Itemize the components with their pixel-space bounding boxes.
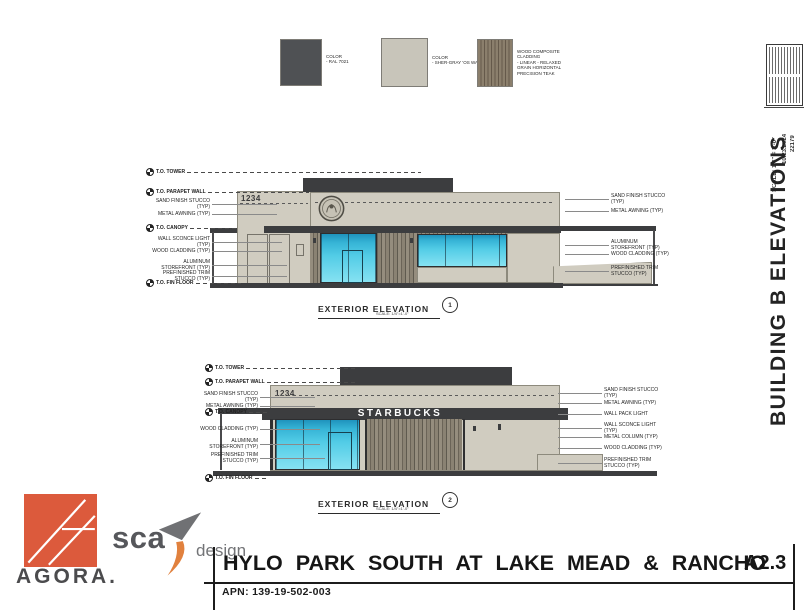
- elevation-1-title: EXTERIOR ELEVATION: [318, 299, 440, 319]
- agora-logo: [24, 494, 97, 567]
- elevation-2-scale: SCALE: 1/4"=1'-0": [376, 506, 409, 511]
- annotation: METAL AWNING (TYP): [565, 209, 670, 215]
- tower-roof-cap: [303, 178, 453, 192]
- rooftop-unit: [340, 367, 512, 385]
- annotation: WOOD CLADDING (TYP): [558, 446, 663, 452]
- benchmark-icon: [205, 364, 213, 372]
- fine-print-lines: [769, 77, 800, 104]
- material-label-light-paint: COLOR - SHER-GRAY 'OS WAD': [432, 55, 482, 66]
- fine-print-lines: [769, 47, 800, 74]
- annotation: PREFINISHED TRIM STUCCO (TYP): [152, 271, 287, 282]
- annotation: PREFINISHED TRIM STUCCO (TYP): [558, 458, 663, 469]
- annotation: SAND FINISH STUCCO (TYP): [200, 392, 315, 403]
- material-swatch-light-paint: [381, 38, 428, 87]
- annotation: SAND FINISH STUCCO (TYP): [558, 388, 663, 399]
- annotation: WALL SCONCE LIGHT (TYP): [558, 423, 663, 434]
- level-marker-row: T.O. PARAPET WALL: [205, 378, 355, 386]
- annotation: METAL AWNING (TYP): [200, 404, 315, 410]
- annotation: ALUMINUM STOREFRONT (TYP): [200, 439, 320, 450]
- annotation: WOOD CLADDING (TYP): [200, 427, 320, 433]
- sidebar-divider-line: [764, 107, 804, 108]
- stucco-right-section: [507, 233, 560, 284]
- level-marker-row: T.O. TOWER: [205, 364, 355, 372]
- metal-column: [365, 419, 367, 470]
- annotation: SAND FINISH STUCCO (TYP): [565, 194, 670, 205]
- level-marker-row: T.O. FIN FLOOR: [205, 474, 268, 482]
- entry-door: [328, 432, 352, 470]
- material-label-wood: WOOD COMPOSITE CLADDING - LINEAR - RELAX…: [517, 49, 561, 76]
- annotation: SAND FINISH STUCCO (TYP): [152, 199, 277, 210]
- starbucks-sign: STARBUCKS: [325, 409, 475, 420]
- benchmark-icon: [146, 188, 154, 196]
- annotation: METAL AWNING (TYP): [152, 212, 277, 218]
- benchmark-icon: [205, 378, 213, 386]
- wall-sconce: [410, 238, 413, 243]
- parapet-dashed-line: [275, 395, 555, 396]
- level-marker-row: T.O. PARAPET WALL: [146, 188, 309, 196]
- annotation: WOOD CLADDING (TYP): [152, 249, 282, 255]
- title-block-left-rule: [213, 547, 215, 610]
- fine-print-box: [766, 44, 803, 106]
- annotation: PREFINISHED TRIM STUCCO (TYP): [200, 453, 325, 464]
- sheet-side-title: BUILDING B ELEVATIONS: [760, 130, 798, 432]
- material-swatch-dark-paint: [280, 39, 322, 86]
- annotation: WOOD CLADDING (TYP): [565, 252, 670, 258]
- base-band: [213, 471, 657, 477]
- annotation: ALUMINUM STOREFRONT (TYP): [565, 240, 670, 251]
- wall-sconce: [313, 238, 316, 243]
- main-upper-wall: [310, 192, 560, 228]
- entry-door: [342, 250, 363, 283]
- detail-number-bubble: 2: [442, 492, 458, 508]
- sheet-number: A2.3: [744, 552, 786, 575]
- canopy-right: [560, 226, 656, 231]
- project-title: HYLO PARK SOUTH AT LAKE MEAD & RANCHO: [223, 551, 766, 576]
- wall-pack-light: [498, 424, 501, 430]
- base-band: [210, 283, 563, 288]
- wood-cladding-band: [367, 419, 462, 470]
- material-swatch-wood: [477, 39, 513, 87]
- elevation-1-scale: SCALE: 1/4"=1'-0": [376, 311, 409, 316]
- starbucks-logo-medallion-icon: [318, 195, 345, 222]
- benchmark-icon: [205, 474, 213, 482]
- annotation: WALL SCONCE LIGHT (TYP): [152, 237, 282, 248]
- parapet-dashed-line: [315, 202, 555, 203]
- storefront-window-band: [417, 234, 507, 267]
- apn-number: APN: 139-19-502-003: [222, 586, 331, 598]
- wall-sconce: [473, 426, 476, 431]
- benchmark-icon: [146, 224, 154, 232]
- annotation: METAL AWNING (TYP): [558, 401, 663, 407]
- louver-vent: [296, 244, 304, 256]
- level-marker-row: T.O. CANOPY: [146, 224, 239, 232]
- title-block-right-rule: [793, 544, 795, 610]
- title-block-horizontal-rule: [204, 582, 795, 584]
- knee-wall: [417, 267, 507, 283]
- material-label-dark-paint: COLOR - RAL 7021: [326, 54, 349, 65]
- architectural-sheet: { "sheet": { "side_title": "BUILDING B E…: [0, 0, 805, 615]
- elevation-2-title: EXTERIOR ELEVATION: [318, 494, 440, 514]
- annotation: METAL COLUMN (TYP): [558, 435, 663, 441]
- ground-line: [563, 284, 658, 286]
- benchmark-icon: [146, 168, 154, 176]
- agora-wordmark: AGORA.: [16, 565, 118, 589]
- level-marker-row: T.O. TOWER: [146, 168, 421, 176]
- detail-number-bubble: 1: [442, 297, 458, 313]
- annotation: PREFINISHED TRIM STUCCO (TYP): [565, 266, 670, 277]
- metal-column: [463, 419, 465, 470]
- annotation: WALL PACK LIGHT: [558, 412, 663, 418]
